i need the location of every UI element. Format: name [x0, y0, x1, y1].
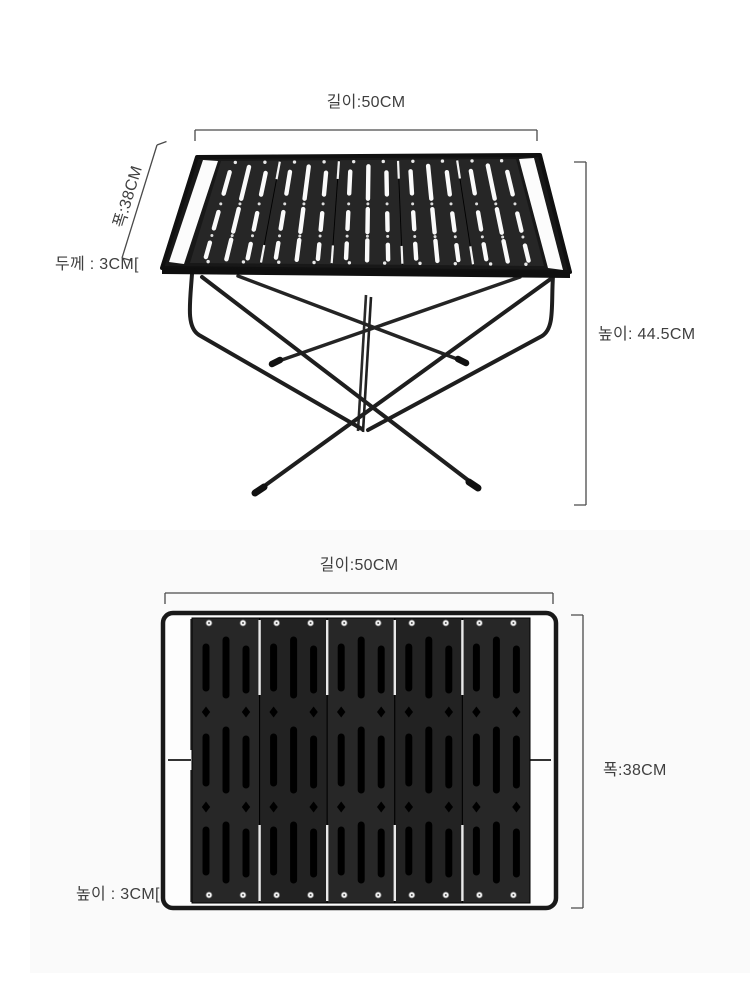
assembled-length-line — [195, 130, 537, 141]
folded-width-label: 폭:38CM — [603, 762, 667, 780]
folded-length-line — [165, 593, 553, 604]
assembled-thickness-label: 두께 : 3CM[ — [55, 256, 139, 274]
dimension-lines — [0, 0, 750, 1000]
assembled-length-label: 길이:50CM — [216, 94, 516, 112]
folded-height-label: 높이 : 3CM[ — [76, 886, 160, 904]
assembled-height-label: 높이: 44.5CM — [598, 326, 695, 344]
folded-width-line — [571, 615, 583, 908]
assembled-height-line — [574, 162, 586, 505]
folded-length-label: 길이:50CM — [209, 557, 509, 575]
